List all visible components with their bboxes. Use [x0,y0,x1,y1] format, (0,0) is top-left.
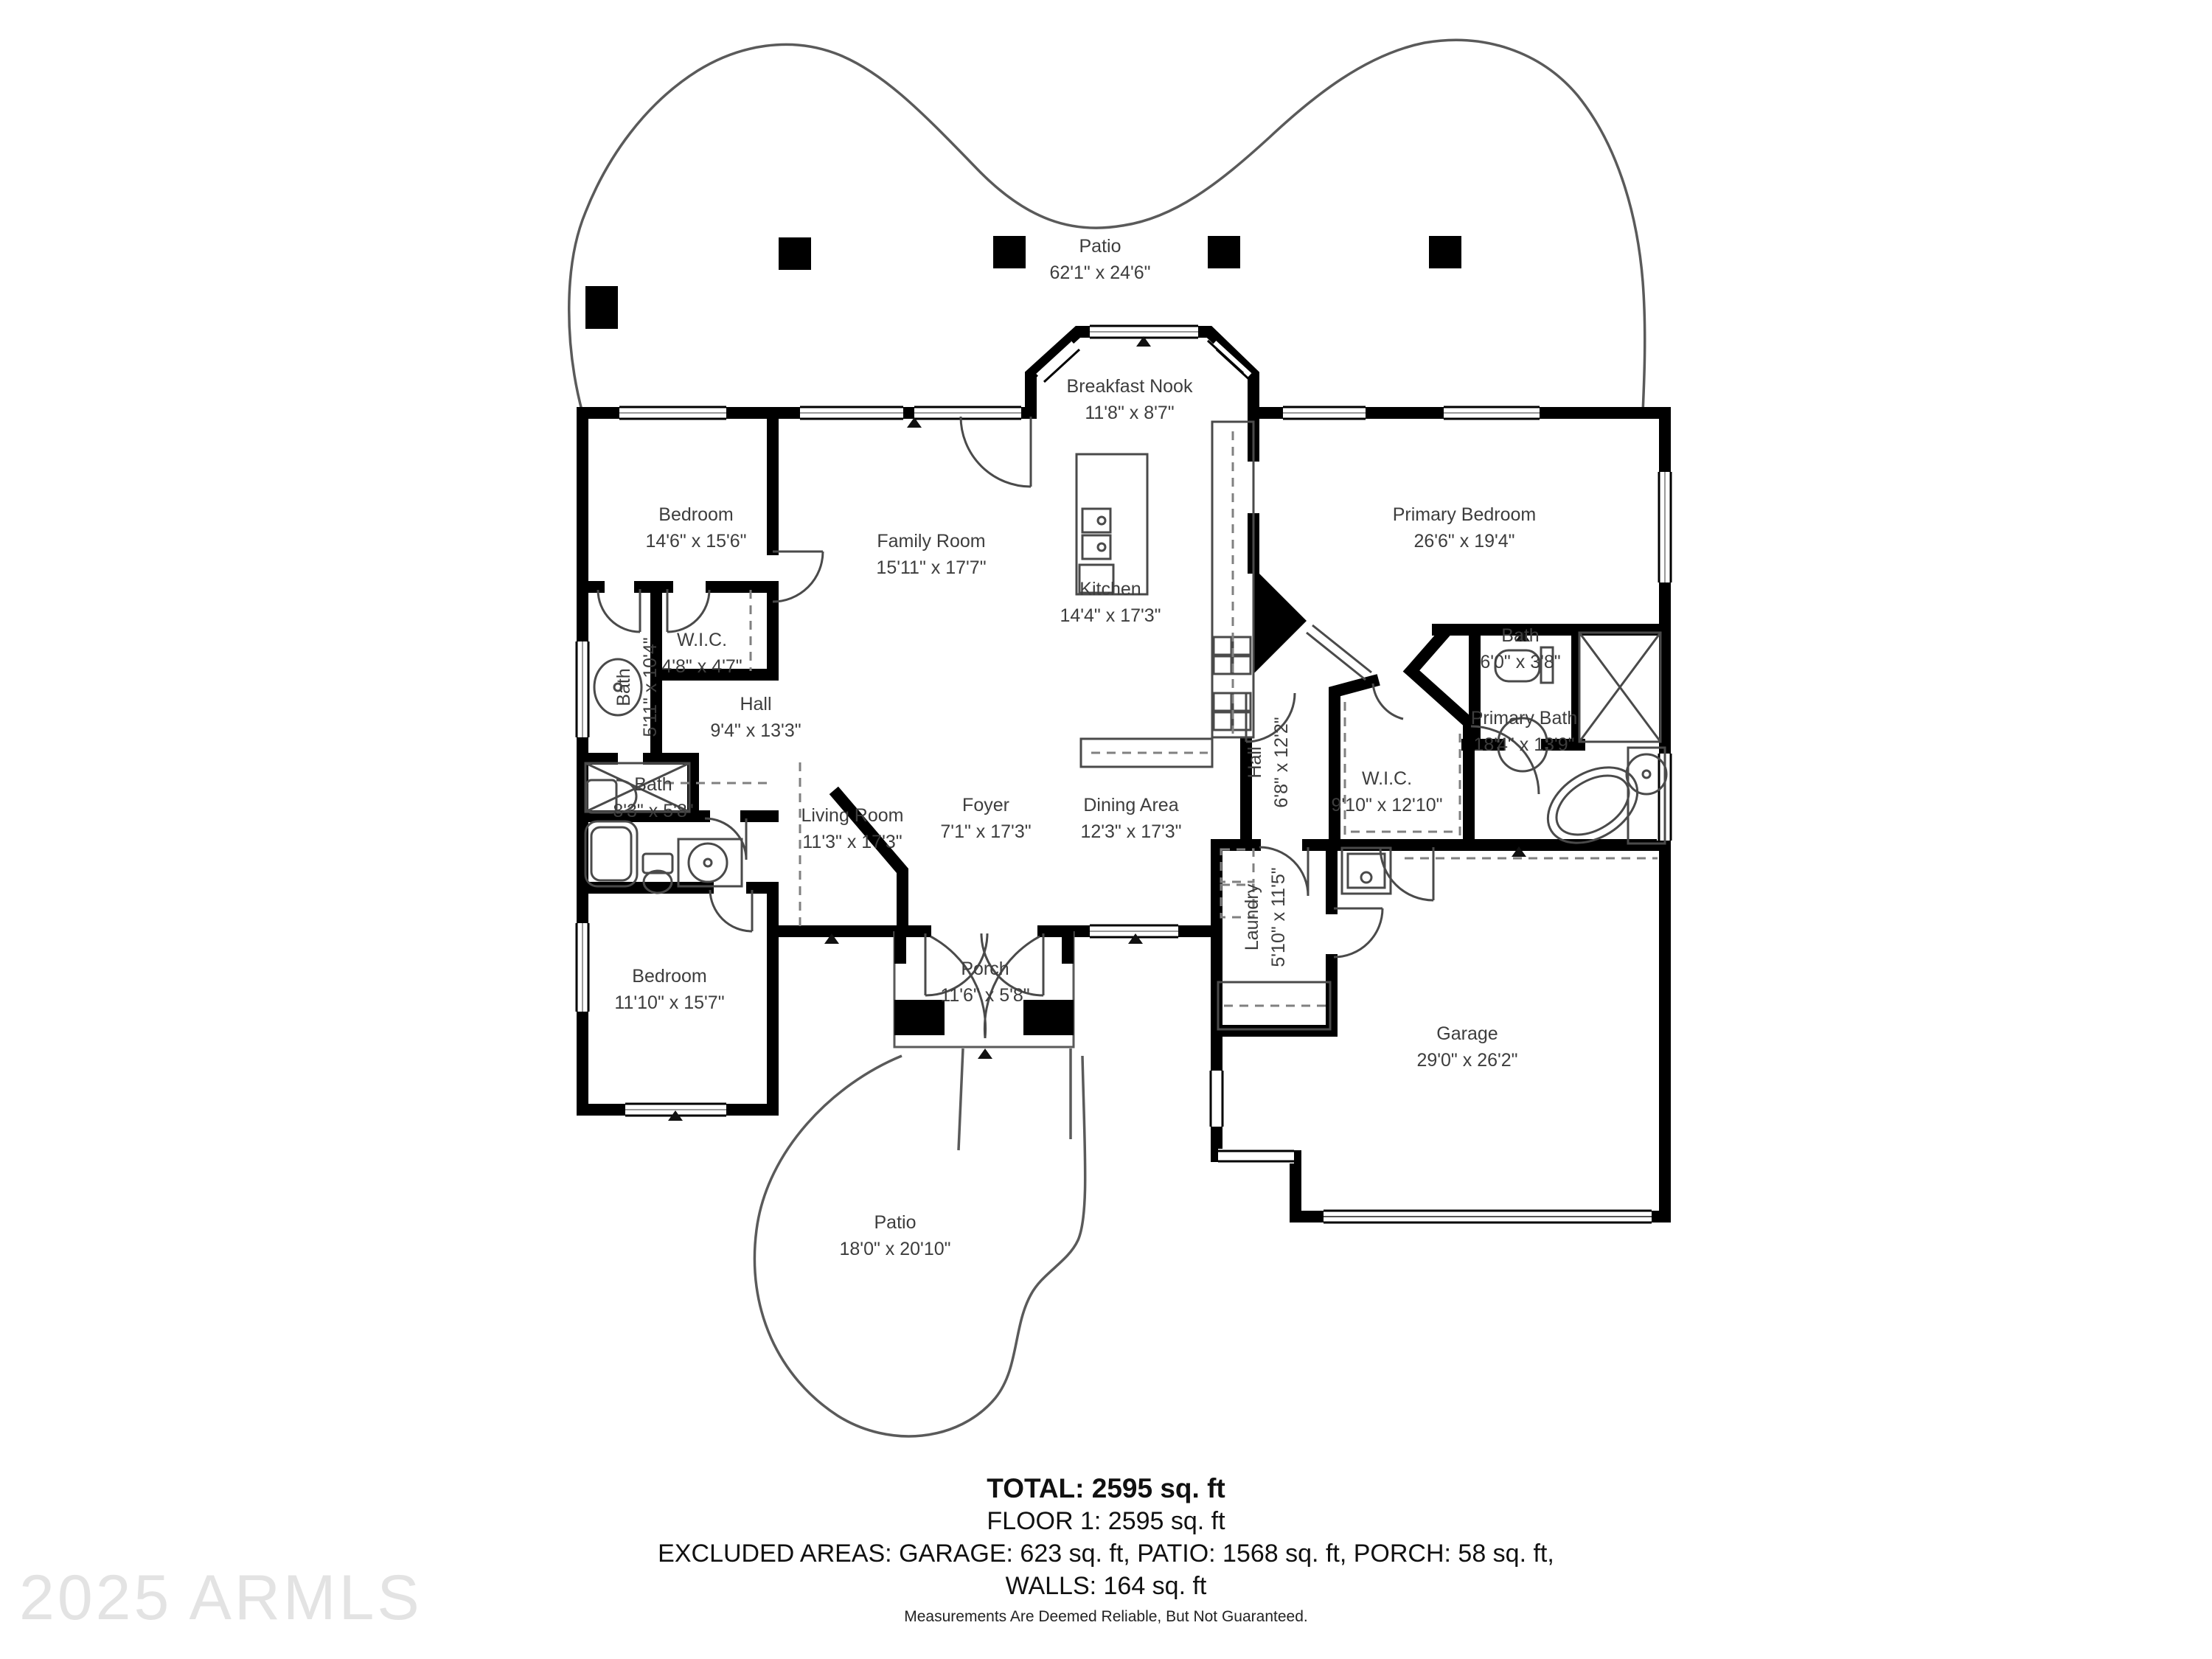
room-name: Foyer [940,792,1031,818]
room-label-bath-mid-left: Bath 8'3" x 5'8" [613,771,693,824]
room-dims: 7'1" x 17'3" [940,818,1031,845]
room-label-bath-upper-left: Bath 5'11" x 10'4" [611,637,664,737]
room-dims: 18'0" x 20'10" [839,1236,950,1262]
shower-icon-primary [1579,633,1660,742]
room-name: Bath [611,637,637,737]
room-dims: 62'1" x 24'6" [1049,260,1150,286]
room-name: Garage [1416,1020,1517,1047]
room-name: Patio [1049,233,1150,260]
room-name: Hall [710,691,801,717]
room-dims: 12'3" x 17'3" [1080,818,1181,845]
room-label-wic-small: W.I.C. 4'8" x 4'7" [661,627,742,680]
room-name: Primary Bath [1471,705,1577,731]
windows [574,324,1673,1224]
room-name: Hall [1242,717,1268,807]
room-label-garage: Garage 29'0" x 26'2" [1416,1020,1517,1074]
room-label-patio-top: Patio 62'1" x 24'6" [1049,233,1150,286]
tub-icon-left-bath [585,821,637,886]
room-dims: 15'11" x 17'7" [876,554,986,581]
area-summary: TOTAL: 2595 sq. ft FLOOR 1: 2595 sq. ft … [658,1472,1554,1632]
room-label-primary-bedroom: Primary Bedroom 26'6" x 19'4" [1393,501,1537,554]
room-dims: 11'6" x 5'8" [940,982,1029,1009]
room-label-primary-bath: Primary Bath 18'4" x 13'9" [1471,705,1577,758]
armls-watermark: 2025 ARMLS [19,1562,422,1635]
patio-outline-top [569,40,1645,413]
room-name: Kitchen [1060,576,1161,602]
disclaimer-text: Measurements Are Deemed Reliable, But No… [658,1602,1554,1632]
room-dims: 26'6" x 19'4" [1393,528,1537,554]
room-label-wic-primary: W.I.C. 9'10" x 12'10" [1331,765,1442,818]
room-name: Patio [839,1209,950,1236]
room-name: Primary Bedroom [1393,501,1537,528]
patio-pillars [585,236,1461,329]
room-dims: 4'8" x 4'7" [661,653,742,680]
room-dims: 9'4" x 13'3" [710,717,801,744]
room-name: Dining Area [1080,792,1181,818]
room-dims: 11'8" x 8'7" [1067,400,1193,426]
garage-sink [1342,848,1391,894]
room-label-bedroom-bottom-left: Bedroom 11'10" x 15'7" [614,963,724,1016]
room-dims: 8'3" x 5'8" [613,798,693,824]
walls [582,332,1665,1217]
room-dims: 14'4" x 17'3" [1060,602,1161,629]
room-dims: 14'6" x 15'6" [645,528,746,554]
room-dims: 5'11" x 10'4" [637,637,664,737]
room-dims: 5'10" x 11'5" [1265,867,1292,967]
room-label-hall-left: Hall 9'4" x 13'3" [710,691,801,744]
room-label-dining-area: Dining Area 12'3" x 17'3" [1080,792,1181,845]
room-label-living-room: Living Room 11'3" x 17'3" [801,802,904,855]
room-name: Porch [940,956,1029,982]
room-name: W.I.C. [1331,765,1442,792]
room-name: Bedroom [645,501,746,528]
room-label-laundry: Laundry 5'10" x 11'5" [1239,867,1292,967]
room-name: Bath [613,771,693,798]
room-dims: 11'3" x 17'3" [801,829,904,855]
room-label-foyer: Foyer 7'1" x 17'3" [940,792,1031,845]
room-label-porch: Porch 11'6" x 5'8" [940,956,1029,1009]
room-name: Family Room [876,528,986,554]
room-label-patio-bottom: Patio 18'0" x 20'10" [839,1209,950,1262]
room-label-bedroom-top-left: Bedroom 14'6" x 15'6" [645,501,746,554]
room-name: Bedroom [614,963,724,990]
room-label-family-room: Family Room 15'11" x 17'7" [876,528,986,581]
room-dims: 6'0" x 3'8" [1480,649,1560,675]
garage-door [1324,1209,1652,1224]
kitchen-island [1077,454,1147,594]
pantry-corner-wall [1253,568,1307,674]
room-label-hall-kitchen: Hall 6'8" x 12'2" [1242,717,1295,807]
room-dims: 29'0" x 26'2" [1416,1047,1517,1074]
walls-area-text: WALLS: 164 sq. ft [658,1570,1554,1602]
floor-plan-page: Patio 62'1" x 24'6" Breakfast Nook 11'8"… [0,0,2212,1659]
room-dims: 18'4" x 13'9" [1471,731,1577,758]
room-dims: 9'10" x 12'10" [1331,792,1442,818]
room-dims: 11'10" x 15'7" [614,990,724,1016]
room-name: Living Room [801,802,904,829]
total-area-text: TOTAL: 2595 sq. ft [658,1472,1554,1505]
room-name: Breakfast Nook [1067,373,1193,400]
room-label-bath-primary-small: Bath 6'0" x 3'8" [1480,622,1560,675]
room-label-kitchen: Kitchen 14'4" x 17'3" [1060,576,1161,629]
floor-area-text: FLOOR 1: 2595 sq. ft [658,1505,1554,1537]
sink-icon-left-bath [678,839,742,886]
room-label-breakfast-nook: Breakfast Nook 11'8" x 8'7" [1067,373,1193,426]
room-name: Bath [1480,622,1560,649]
room-name: Laundry [1239,867,1265,967]
room-name: W.I.C. [661,627,742,653]
excluded-areas-text: EXCLUDED AREAS: GARAGE: 623 sq. ft, PATI… [658,1537,1554,1570]
room-dims: 6'8" x 12'2" [1268,717,1295,807]
